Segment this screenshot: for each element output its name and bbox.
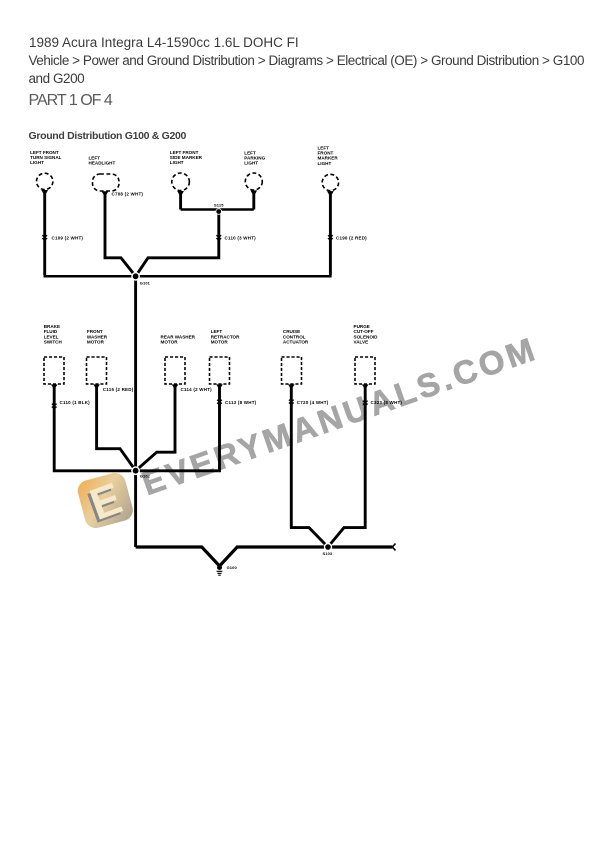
svg-text:S103: S103 [323, 551, 333, 556]
svg-text:LIGHT: LIGHT [30, 160, 44, 165]
svg-text:C114 (2 WHT): C114 (2 WHT) [181, 387, 213, 392]
svg-text:LIGHT: LIGHT [170, 160, 184, 165]
svg-text:MOTOR: MOTOR [161, 340, 179, 345]
svg-text:C110 (1 BLK): C110 (1 BLK) [60, 400, 91, 405]
svg-text:C113 (8 WHT): C113 (8 WHT) [225, 400, 257, 405]
svg-text:C115 (2 RED): C115 (2 RED) [103, 387, 134, 392]
svg-text:MOTOR: MOTOR [211, 340, 229, 345]
svg-text:G100: G100 [227, 565, 238, 570]
svg-text:C720 (4 WHT): C720 (4 WHT) [297, 400, 329, 405]
svg-text:EVERYMANUALS.COM: EVERYMANUALS.COM [137, 330, 542, 502]
svg-text:VALVE: VALVE [354, 340, 369, 345]
svg-text:G102: G102 [140, 473, 151, 478]
svg-text:C190 (2 RED): C190 (2 RED) [336, 236, 367, 241]
svg-text:G101: G101 [140, 281, 151, 286]
svg-text:C110 (3 WHT): C110 (3 WHT) [225, 236, 257, 241]
svg-text:C109 (2 WHT): C109 (2 WHT) [52, 236, 84, 241]
svg-text:S115: S115 [214, 202, 224, 207]
svg-text:SWITCH: SWITCH [44, 340, 63, 345]
svg-text:LIGHT: LIGHT [244, 161, 258, 166]
svg-text:MOTOR: MOTOR [87, 340, 105, 345]
svg-text:HEADLIGHT: HEADLIGHT [89, 161, 116, 166]
svg-text:C708 (2 WHT): C708 (2 WHT) [112, 192, 144, 197]
svg-text:C323 (8 WHT): C323 (8 WHT) [371, 400, 403, 405]
svg-text:ACTUATOR: ACTUATOR [283, 340, 309, 345]
svg-text:LIGHT: LIGHT [318, 161, 332, 166]
